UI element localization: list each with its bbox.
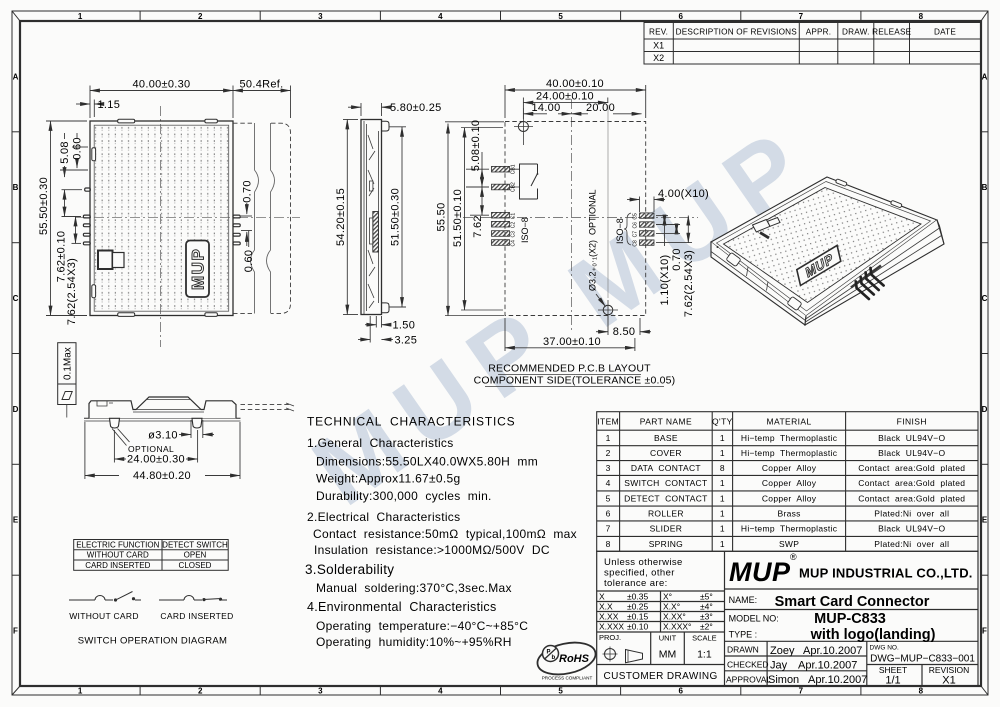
svg-text:APPR.: APPR. <box>806 28 832 37</box>
svg-text:24.00±0.30: 24.00±0.30 <box>127 454 185 466</box>
svg-text:Simon: Simon <box>768 674 799 686</box>
svg-text:Brass: Brass <box>777 509 800 519</box>
svg-text:55.50±0.30: 55.50±0.30 <box>38 177 50 235</box>
svg-text:51.50±0.30: 51.50±0.30 <box>390 188 402 246</box>
svg-text:44.80±0.20: 44.80±0.20 <box>133 470 191 482</box>
svg-text:0.70: 0.70 <box>242 180 254 203</box>
svg-text:X.XXX°: X.XXX° <box>663 622 691 632</box>
svg-text:±0.25: ±0.25 <box>627 601 648 611</box>
svg-text:3.Solderability: 3.Solderability <box>305 562 394 577</box>
svg-text:±5°: ±5° <box>700 591 713 601</box>
svg-text:PROJ.: PROJ. <box>599 633 621 642</box>
svg-text:REV.: REV. <box>649 28 668 37</box>
svg-text:specified, other: specified, other <box>604 568 675 579</box>
svg-text:0.60: 0.60 <box>243 250 255 273</box>
svg-text:1.50: 1.50 <box>393 320 416 332</box>
svg-text:±0.35: ±0.35 <box>627 591 648 601</box>
svg-text:PART NAME: PART NAME <box>640 417 692 427</box>
svg-text:7.62(2.54X3): 7.62(2.54X3) <box>683 250 695 317</box>
svg-text:2: 2 <box>606 448 611 458</box>
svg-text:PROCESS COMPLIANT: PROCESS COMPLIANT <box>542 676 593 681</box>
svg-text:SWITCH OPERATION DIAGRAM: SWITCH OPERATION DIAGRAM <box>78 636 228 647</box>
svg-text:3: 3 <box>318 687 323 696</box>
svg-text:MODEL NO:: MODEL NO: <box>729 614 779 624</box>
svg-text:2: 2 <box>198 12 203 21</box>
svg-text:ISO−8: ISO−8 <box>520 217 530 243</box>
svg-text:55.50: 55.50 <box>436 202 448 231</box>
svg-text:ø3.10: ø3.10 <box>148 430 178 442</box>
svg-text:DRAWN: DRAWN <box>727 645 759 655</box>
svg-text:CARD INSERTED: CARD INSERTED <box>160 611 233 621</box>
svg-text:1.General Characteristics: 1.General Characteristics <box>307 436 454 450</box>
svg-text:0.70: 0.70 <box>671 248 683 271</box>
svg-text:SCALE: SCALE <box>692 634 717 643</box>
svg-text:1:1: 1:1 <box>697 649 712 661</box>
svg-text:Black UL94V−O: Black UL94V−O <box>878 524 945 534</box>
svg-text:Operating humidity:10%~+95%RH: Operating humidity:10%~+95%RH <box>316 635 512 649</box>
svg-text:Contact resistance:50mΩ typi: Contact resistance:50mΩ typical,100mΩ ma… <box>313 527 577 541</box>
svg-text:1/1: 1/1 <box>885 675 900 687</box>
svg-text:X.XXX: X.XXX <box>599 622 624 632</box>
svg-text:X.X°: X.X° <box>663 601 680 611</box>
svg-text:TYPE :: TYPE : <box>729 630 758 640</box>
svg-text:7: 7 <box>606 524 611 534</box>
svg-text:SWITCH CONTACT: SWITCH CONTACT <box>624 478 707 488</box>
svg-text:4: 4 <box>438 12 443 21</box>
svg-text:UNIT: UNIT <box>659 634 677 643</box>
svg-text:X: X <box>599 591 605 601</box>
svg-text:OPTIONAL: OPTIONAL <box>128 444 174 454</box>
svg-text:MM: MM <box>659 649 677 661</box>
svg-text:Unless otherwise: Unless otherwise <box>604 557 683 568</box>
svg-text:1: 1 <box>720 433 725 443</box>
svg-text:Operating temperature:−40°C~+: Operating temperature:−40°C~+85°C <box>316 619 528 633</box>
svg-text:40.00±0.10: 40.00±0.10 <box>546 78 604 90</box>
svg-text:5: 5 <box>606 494 611 504</box>
svg-text:MUP-C833: MUP-C833 <box>814 611 886 627</box>
svg-text:8: 8 <box>919 687 924 696</box>
svg-text:B: B <box>13 183 19 192</box>
svg-text:APPROVAL: APPROVAL <box>726 675 771 685</box>
svg-text:C8: C8 <box>633 240 639 247</box>
svg-text:±2°: ±2° <box>700 622 713 632</box>
svg-text:8: 8 <box>720 463 725 473</box>
svg-text:20.00: 20.00 <box>586 102 615 114</box>
svg-text:C: C <box>982 294 988 303</box>
svg-text:X.X: X.X <box>599 601 613 611</box>
svg-text:8: 8 <box>919 12 924 21</box>
svg-text:0.1Max: 0.1Max <box>63 347 74 380</box>
svg-text:BASE: BASE <box>654 433 678 443</box>
svg-text:DETECT CONTACT: DETECT CONTACT <box>624 494 708 504</box>
svg-text:7.62(2.54X3): 7.62(2.54X3) <box>66 258 78 325</box>
svg-text:Hi−temp Thermoplastic: Hi−temp Thermoplastic <box>741 448 838 458</box>
svg-text:6: 6 <box>678 12 683 21</box>
svg-text:ELECTRIC FUNCTION: ELECTRIC FUNCTION <box>76 540 159 549</box>
svg-text:C: C <box>13 294 19 303</box>
svg-text:RELEASE: RELEASE <box>872 28 912 37</box>
svg-text:SLIDER: SLIDER <box>650 524 683 534</box>
svg-text:±0.10: ±0.10 <box>627 622 648 632</box>
svg-text:Contact area:Gold plated: Contact area:Gold plated <box>858 494 965 504</box>
svg-text:FINISH: FINISH <box>897 417 927 427</box>
svg-text:SWP: SWP <box>779 539 799 549</box>
svg-text:with logo(landing): with logo(landing) <box>810 627 936 643</box>
svg-text:24.00±0.10: 24.00±0.10 <box>536 91 594 103</box>
svg-text:OPEN: OPEN <box>184 551 207 560</box>
svg-text:C2: C2 <box>511 222 517 229</box>
svg-text:Apr.10.2007: Apr.10.2007 <box>808 674 867 686</box>
svg-text:Copper Alloy: Copper Alloy <box>762 494 817 504</box>
svg-text:MUP: MUP <box>729 557 791 587</box>
svg-text:Insulation resistance:>1000MΩ: Insulation resistance:>1000MΩ/500V DC <box>314 543 550 557</box>
svg-text:DRAW.: DRAW. <box>842 28 870 37</box>
svg-text:A: A <box>13 72 19 81</box>
svg-text:Jay: Jay <box>770 660 788 672</box>
svg-text:1: 1 <box>606 433 611 443</box>
svg-text:Copper Alloy: Copper Alloy <box>762 463 817 473</box>
svg-text:Contact area:Gold plated: Contact area:Gold plated <box>858 478 965 488</box>
svg-text:Manual soldering:370°C,3sec.M: Manual soldering:370°C,3sec.Max <box>316 581 512 595</box>
svg-text:1: 1 <box>720 509 725 519</box>
svg-text:6: 6 <box>606 509 611 519</box>
svg-text:B: B <box>982 183 988 192</box>
svg-text:ITEM: ITEM <box>597 417 619 427</box>
svg-text:C6: C6 <box>633 222 639 229</box>
svg-text:Black UL94V−O: Black UL94V−O <box>878 433 945 443</box>
svg-text:P: P <box>547 650 551 656</box>
svg-text:Copper Alloy: Copper Alloy <box>762 478 817 488</box>
svg-text:8: 8 <box>606 539 611 549</box>
svg-text:C1: C1 <box>511 213 517 220</box>
svg-text:WITHOUT CARD: WITHOUT CARD <box>87 551 149 560</box>
svg-text:4: 4 <box>438 687 443 696</box>
svg-text:NAME:: NAME: <box>729 595 758 605</box>
svg-text:X1: X1 <box>942 675 955 687</box>
svg-text:Apr.10.2007: Apr.10.2007 <box>803 645 862 657</box>
svg-text:X.XX°: X.XX° <box>663 612 686 622</box>
svg-text:RECOMMENDED P.C.B LAYOUT: RECOMMENDED P.C.B LAYOUT <box>488 363 651 375</box>
svg-text:1: 1 <box>720 448 725 458</box>
svg-text:CARD INSERTED: CARD INSERTED <box>85 561 150 570</box>
svg-text:F: F <box>982 627 987 636</box>
svg-text:40.00±0.30: 40.00±0.30 <box>133 79 191 91</box>
svg-text:±0.15: ±0.15 <box>627 612 648 622</box>
svg-text:8.50: 8.50 <box>613 326 636 338</box>
svg-text:MATERIAL: MATERIAL <box>767 417 812 427</box>
svg-text:SHEET: SHEET <box>879 665 907 675</box>
svg-text:±4°: ±4° <box>700 601 713 611</box>
svg-text:3: 3 <box>606 463 611 473</box>
svg-text:2: 2 <box>198 687 203 696</box>
svg-text:Hi−temp Thermoplastic: Hi−temp Thermoplastic <box>741 524 838 534</box>
svg-text:37.00±0.10: 37.00±0.10 <box>543 336 601 348</box>
svg-text:DWG−MUP−C833−001: DWG−MUP−C833−001 <box>870 654 975 665</box>
svg-text:5.08±0.10: 5.08±0.10 <box>470 120 482 172</box>
svg-text:Zoey: Zoey <box>770 645 795 657</box>
svg-text:X.XX: X.XX <box>599 612 619 622</box>
svg-text:4: 4 <box>606 478 611 488</box>
svg-text:ROLLER: ROLLER <box>648 509 684 519</box>
svg-text:X2: X2 <box>653 53 664 63</box>
svg-text:1.15: 1.15 <box>98 99 121 111</box>
svg-text:7: 7 <box>799 12 804 21</box>
svg-text:C3: C3 <box>511 231 517 238</box>
svg-text:RoHS: RoHS <box>559 653 590 665</box>
svg-text:X°: X° <box>663 591 672 601</box>
svg-text:tolerance are:: tolerance are: <box>604 578 668 589</box>
svg-text:7: 7 <box>799 687 804 696</box>
svg-text:E: E <box>13 516 19 525</box>
svg-text:Apr.10.2007: Apr.10.2007 <box>798 660 857 672</box>
svg-text:54.20±0.15: 54.20±0.15 <box>335 188 347 246</box>
svg-text:COMPONENT SIDE(TOLERANCE ±0.05: COMPONENT SIDE(TOLERANCE ±0.05) <box>474 375 676 387</box>
svg-text:1.10(X10): 1.10(X10) <box>659 254 671 305</box>
svg-text:5.08: 5.08 <box>59 141 71 164</box>
svg-text:5.80±0.25: 5.80±0.25 <box>390 102 442 114</box>
svg-text:A: A <box>982 72 988 81</box>
svg-text:1: 1 <box>720 524 725 534</box>
svg-text:CUSTOMER DRAWING: CUSTOMER DRAWING <box>604 671 718 682</box>
svg-text:1: 1 <box>78 687 83 696</box>
svg-text:COVER: COVER <box>650 448 682 458</box>
svg-text:50.4Ref.: 50.4Ref. <box>240 79 284 91</box>
svg-text:MUP: MUP <box>189 248 208 290</box>
svg-text:DATE: DATE <box>934 28 956 37</box>
svg-text:C4: C4 <box>511 240 517 247</box>
svg-text:Black UL94V−O: Black UL94V−O <box>878 448 945 458</box>
svg-text:2.Electrical Characteristics: 2.Electrical Characteristics <box>307 510 460 524</box>
svg-text:Plated:Ni over all: Plated:Ni over all <box>874 539 949 549</box>
svg-text:REVISION: REVISION <box>929 665 970 675</box>
svg-text:DATA CONTACT: DATA CONTACT <box>631 463 701 473</box>
svg-text:CHECKED: CHECKED <box>727 660 769 670</box>
svg-text:®: ® <box>790 552 797 562</box>
svg-text:7.62: 7.62 <box>472 215 484 238</box>
svg-text:Contact area:Gold plated: Contact area:Gold plated <box>858 463 965 473</box>
svg-text:D: D <box>13 405 19 414</box>
svg-text:1: 1 <box>78 12 83 21</box>
svg-text:1: 1 <box>720 494 725 504</box>
svg-text:4.Environmental Characteristi: 4.Environmental Characteristics <box>307 600 497 614</box>
svg-text:51.50±0.10: 51.50±0.10 <box>452 189 464 247</box>
svg-text:SPRING: SPRING <box>649 539 683 549</box>
svg-text:Q'TY: Q'TY <box>712 417 733 427</box>
svg-text:MUP INDUSTRIAL CO.,LTD.: MUP INDUSTRIAL CO.,LTD. <box>799 566 973 581</box>
svg-text:5: 5 <box>558 12 563 21</box>
svg-text:0.60: 0.60 <box>72 137 84 160</box>
svg-text:F: F <box>13 627 18 636</box>
svg-text:3: 3 <box>318 12 323 21</box>
svg-text:Durability:300,000 cycles mi: Durability:300,000 cycles min. <box>316 489 492 503</box>
svg-text:4.00(X10): 4.00(X10) <box>658 188 709 200</box>
svg-text:6: 6 <box>678 687 683 696</box>
svg-text:5: 5 <box>558 687 563 696</box>
svg-text:Ø3.2₊₀·₁(X2) OPTIONAL: Ø3.2₊₀·₁(X2) OPTIONAL <box>588 189 598 291</box>
svg-text:3.25: 3.25 <box>395 335 418 347</box>
svg-text:1: 1 <box>720 539 725 549</box>
svg-text:DESCRIPTION OF REVISIONS: DESCRIPTION OF REVISIONS <box>676 28 798 37</box>
svg-text:b: b <box>552 655 556 661</box>
svg-text:Hi−temp Thermoplastic: Hi−temp Thermoplastic <box>741 433 838 443</box>
svg-text:DWG NO.: DWG NO. <box>870 645 899 652</box>
svg-text:14.00: 14.00 <box>531 102 560 114</box>
svg-text:Dimensions:55.50LX40.0WX5.80H: Dimensions:55.50LX40.0WX5.80H mm <box>316 455 538 469</box>
svg-text:X1: X1 <box>653 41 664 51</box>
svg-text:DETECT SWITCH: DETECT SWITCH <box>162 540 228 549</box>
svg-text:±3°: ±3° <box>700 612 713 622</box>
svg-text:ISO−8: ISO−8 <box>615 218 625 244</box>
svg-text:1: 1 <box>720 478 725 488</box>
svg-text:C5: C5 <box>633 213 639 220</box>
svg-text:WITHOUT CARD: WITHOUT CARD <box>69 611 139 621</box>
svg-text:D: D <box>982 405 988 414</box>
svg-text:CLOSED: CLOSED <box>179 561 212 570</box>
svg-text:E: E <box>982 516 988 525</box>
svg-text:Smart Card Connector: Smart Card Connector <box>775 594 930 610</box>
svg-text:TECHNICAL CHARACTERISTICS: TECHNICAL CHARACTERISTICS <box>307 415 515 429</box>
svg-text:C7: C7 <box>633 231 639 238</box>
svg-text:Weight:Approx11.67±0.5g: Weight:Approx11.67±0.5g <box>316 472 460 486</box>
svg-text:Plated:Ni over all: Plated:Ni over all <box>874 509 949 519</box>
